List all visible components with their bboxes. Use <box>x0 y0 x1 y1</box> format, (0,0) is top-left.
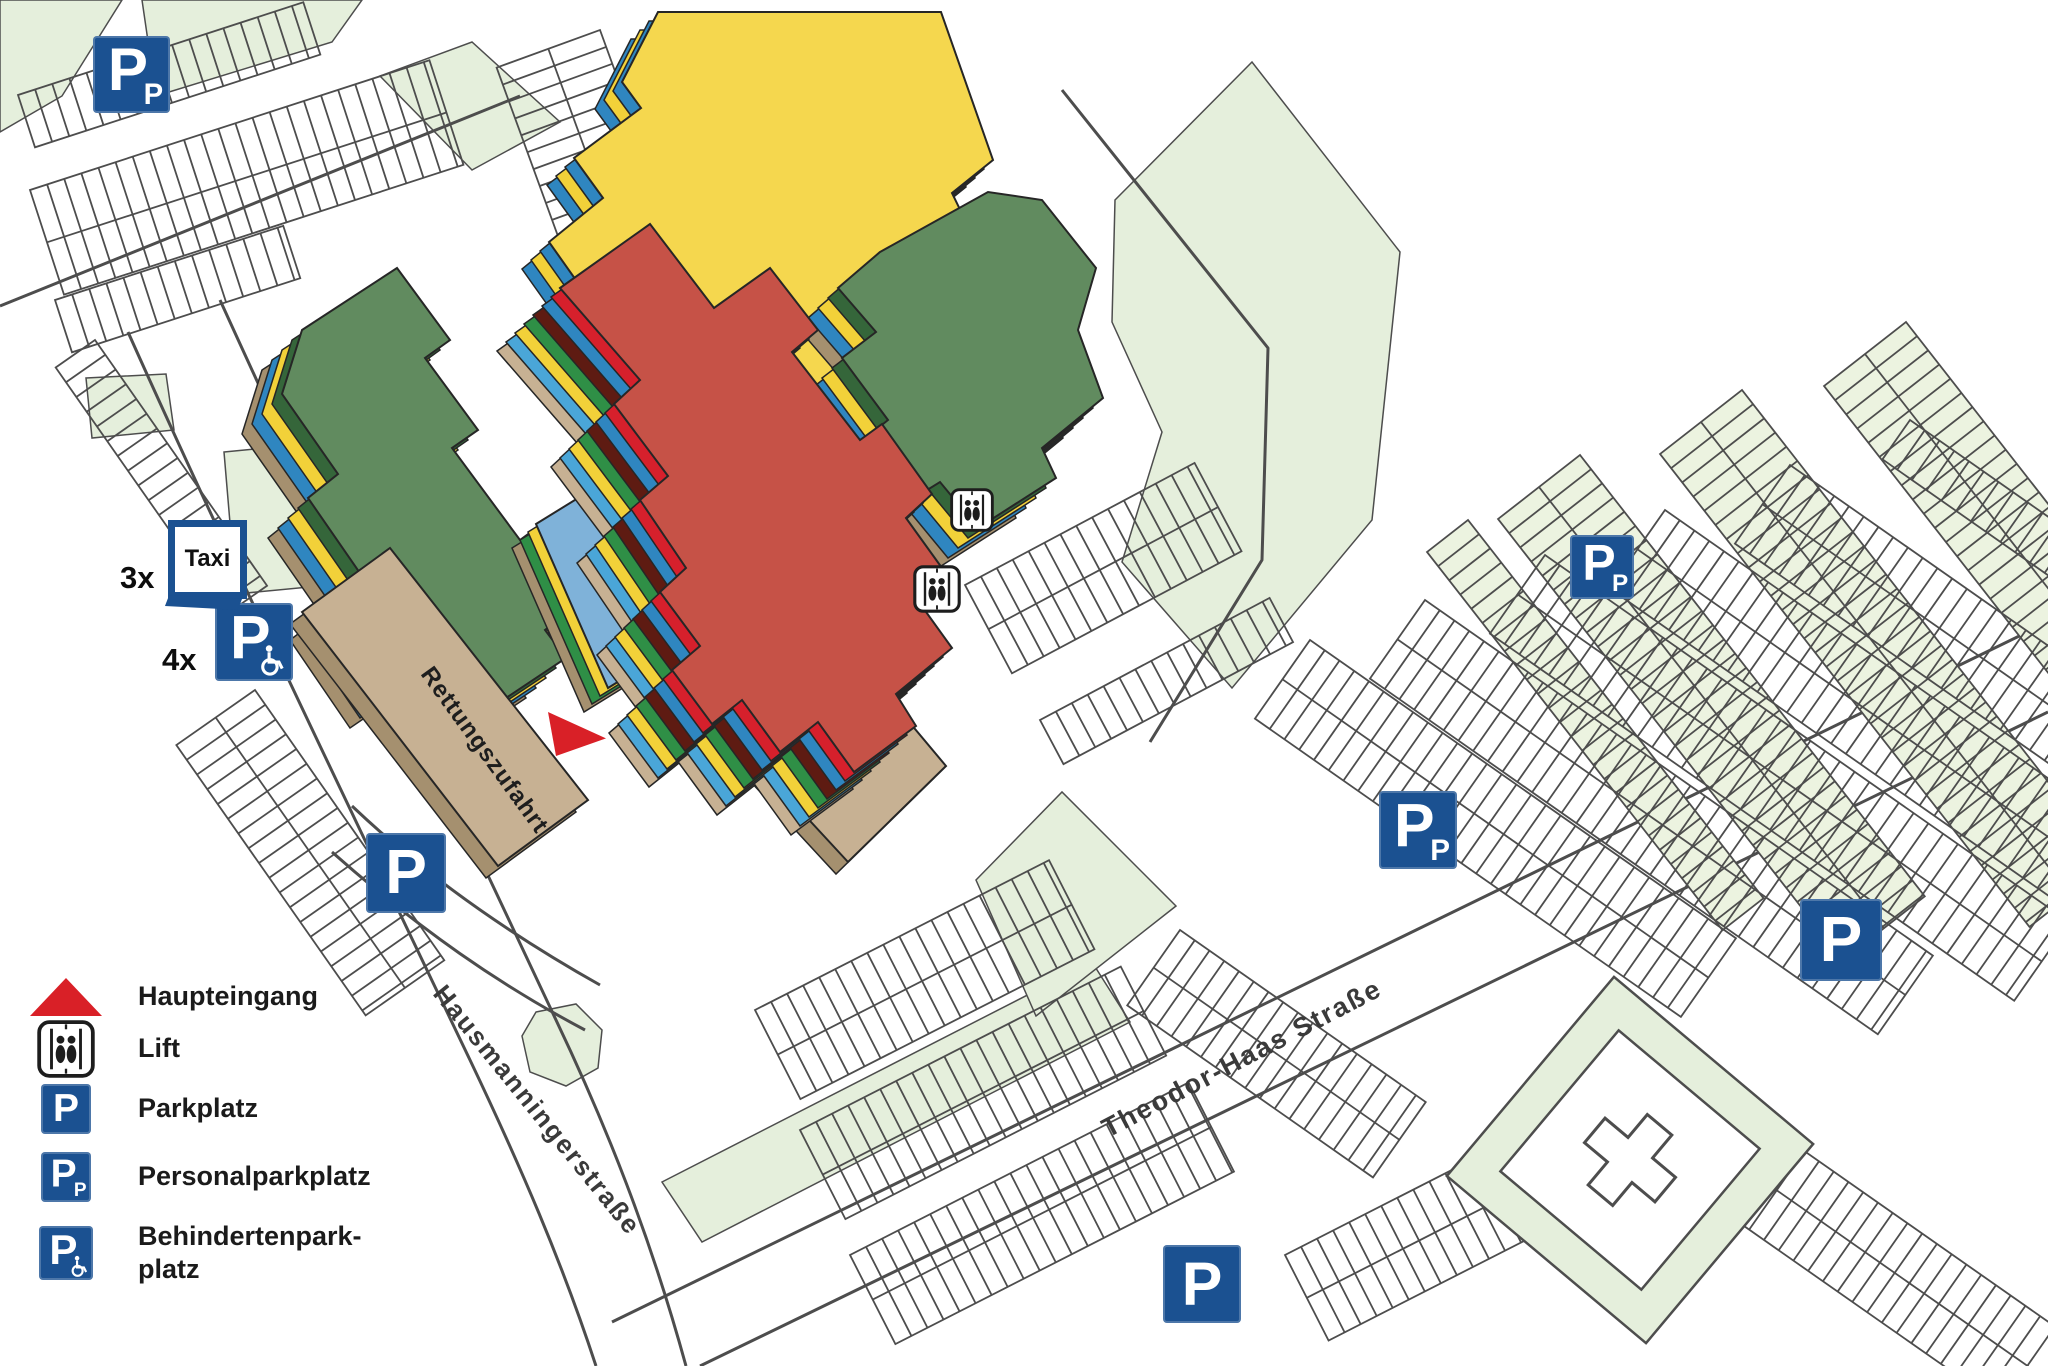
parking-sign-icon: P <box>366 833 446 913</box>
lift-icon <box>913 565 961 613</box>
taxi-label: Taxi <box>185 546 231 573</box>
taxi-sign-base <box>165 595 242 610</box>
legend-item-main-entrance: Haupteingang <box>20 980 371 1014</box>
legend-item-parking: P Parkplatz <box>20 1084 371 1134</box>
staff-parking-sign-icon-glyph: PP <box>41 1152 91 1202</box>
legend-item-staff-parking: PP Personalparkplatz <box>20 1152 371 1202</box>
letter-p: P <box>1182 1254 1223 1315</box>
legend-label-lift: Lift <box>138 1032 180 1066</box>
legend-item-lift: Lift <box>20 1032 371 1066</box>
wheelchair-icon <box>256 644 289 677</box>
taxi-sign-icon: Taxi <box>168 520 247 599</box>
disabled-parking-sign-icon: P <box>215 603 293 681</box>
letter-p: P <box>385 842 427 904</box>
letter-p: P <box>1820 908 1863 972</box>
disabled-parking-sign-icon-glyph: P <box>39 1226 93 1280</box>
main-entrance-triangle-glyph <box>28 975 104 1019</box>
staff-parking-sign-icon: PP <box>20 1152 112 1202</box>
parking-sign-icon: P <box>20 1084 112 1134</box>
disabled-parking-sign-icon: P <box>20 1226 112 1280</box>
staff-parking-sign-icon: PP <box>1379 791 1457 869</box>
lift-icon <box>950 488 994 532</box>
taxi-count: 3x <box>120 560 154 596</box>
legend-label-main-entrance: Haupteingang <box>138 980 318 1014</box>
letter-small-p: P <box>144 81 164 110</box>
parking-sign-icon: P <box>1163 1245 1241 1323</box>
main-entrance-marker <box>544 706 608 760</box>
letter-small-p: P <box>1430 836 1450 866</box>
legend-label-disabled-parking: Behindertenpark- platz <box>138 1220 362 1288</box>
letter-p: P <box>108 40 148 100</box>
letter-p: P <box>53 1089 79 1128</box>
letter-p: P <box>51 1154 77 1193</box>
site-map: Hausmanningerstraße Theodor-Haas Straße … <box>0 0 2048 1366</box>
letter-small-p: P <box>1612 572 1628 596</box>
lift-glyph <box>37 1020 95 1078</box>
legend-label-parking: Parkplatz <box>138 1092 258 1126</box>
disabled-parking-count: 4x <box>162 642 196 678</box>
parking-sign-icon: P <box>1800 899 1882 981</box>
legend: Haupteingang Lift P Parkplatz PP Persona… <box>20 980 371 1287</box>
parking-sign-icon-glyph: P <box>41 1084 91 1134</box>
wheelchair-icon <box>68 1255 91 1278</box>
letter-p: P <box>1582 539 1615 589</box>
legend-label-staff-parking: Personalparkplatz <box>138 1160 371 1194</box>
letter-p: P <box>1394 795 1435 856</box>
letter-small-p: P <box>74 1181 87 1200</box>
staff-parking-sign-icon: PP <box>1570 535 1634 599</box>
staff-parking-sign-icon: PP <box>93 36 170 113</box>
legend-item-disabled-parking: P Behindertenpark- platz <box>20 1220 371 1288</box>
